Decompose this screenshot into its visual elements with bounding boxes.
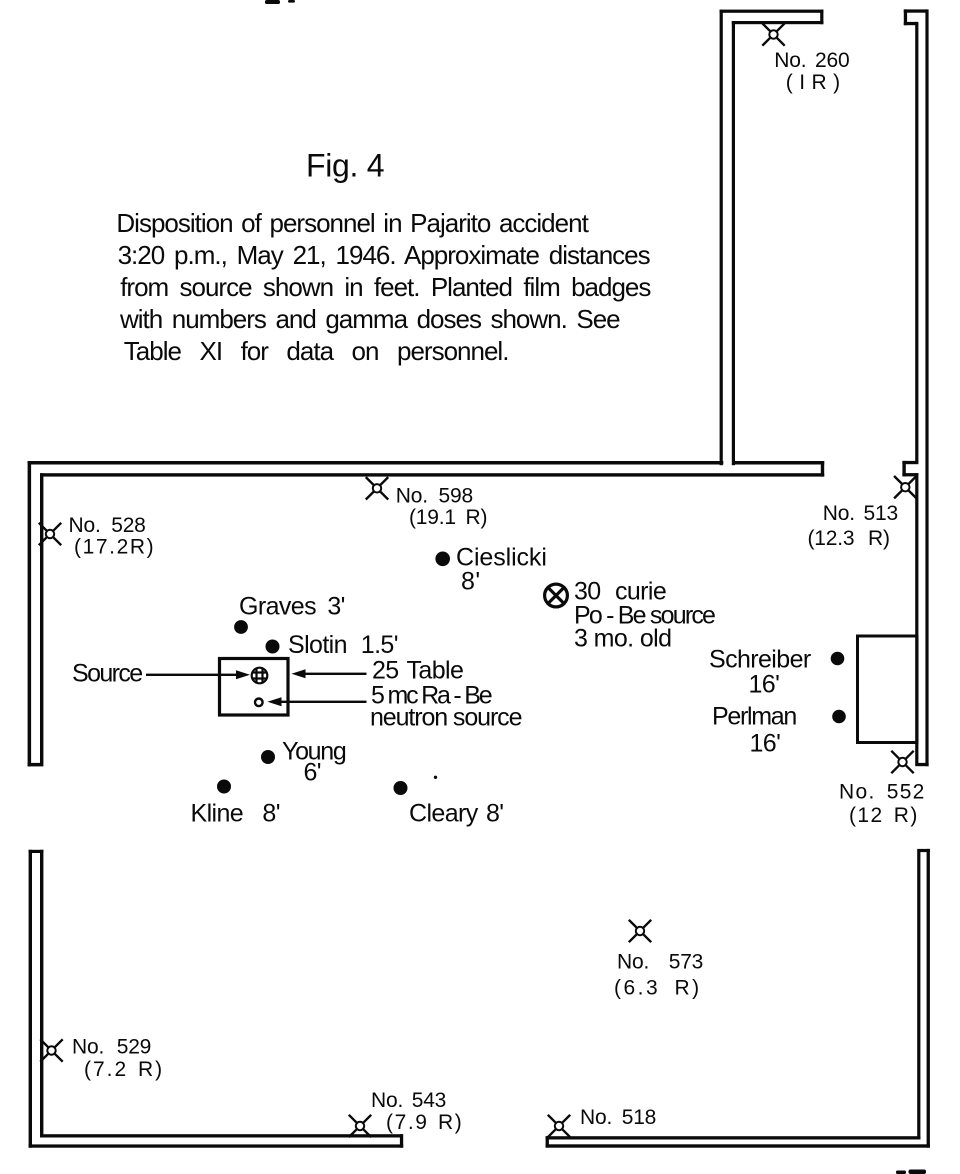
svg-text:( I R ): ( I R ) [786, 71, 840, 94]
svg-text:Graves 3': Graves 3' [239, 593, 345, 621]
svg-text:(7.2 R): (7.2 R) [84, 1058, 164, 1081]
svg-text:No. 573: No. 573 [617, 950, 703, 973]
svg-text:No. 513: No. 513 [823, 502, 898, 525]
svg-text:Perlman: Perlman [712, 703, 796, 731]
svg-text:(19.1 R): (19.1 R) [409, 506, 487, 529]
svg-text:(17.2R): (17.2R) [74, 535, 155, 558]
svg-text:with numbers and gamma doses s: with numbers and gamma doses shown. See [119, 304, 620, 334]
svg-text:(6.3 R): (6.3 R) [614, 976, 702, 999]
svg-text:Cleary 8': Cleary 8' [409, 800, 503, 828]
svg-text:16': 16' [750, 730, 781, 758]
svg-text:Source: Source [72, 660, 142, 688]
svg-text:16': 16' [749, 671, 780, 699]
svg-text:Schreiber: Schreiber [709, 646, 811, 674]
svg-text:Slotin 1.5': Slotin 1.5' [288, 631, 398, 659]
svg-text:No. 552: No. 552 [839, 780, 926, 803]
svg-text:Table XI for data on personnel: Table XI for data on personnel. [124, 336, 509, 366]
svg-text:3:20 p.m., May 21, 1946. Appro: 3:20 p.m., May 21, 1946. Approximate dis… [118, 240, 651, 270]
svg-text:Disposition of personnel in Pa: Disposition of personnel in Pajarito acc… [116, 208, 589, 238]
svg-text:No. 543: No. 543 [371, 1089, 446, 1112]
svg-text:(12 R): (12 R) [849, 804, 919, 827]
svg-text:No. 598: No. 598 [396, 484, 473, 507]
svg-text:No. 529: No. 529 [72, 1035, 151, 1058]
svg-text:No. 528: No. 528 [69, 514, 146, 537]
svg-text:No. 260: No. 260 [774, 49, 849, 72]
svg-text:Kline 8': Kline 8' [191, 800, 280, 828]
svg-text:25 Table: 25 Table [372, 657, 463, 685]
svg-text:3 mo. old: 3 mo. old [574, 625, 671, 653]
svg-text:No. 518: No. 518 [580, 1106, 656, 1129]
svg-text:neutron source: neutron source [370, 704, 522, 732]
svg-text:(12.3 R): (12.3 R) [808, 527, 890, 550]
svg-text:8': 8' [461, 568, 481, 596]
svg-text:Fig. 4: Fig. 4 [306, 148, 384, 184]
svg-text:from source shown in feet. Pla: from source shown in feet. Planted film … [120, 272, 651, 302]
svg-text:6': 6' [304, 759, 321, 787]
svg-text:(7.9 R): (7.9 R) [386, 1111, 463, 1134]
